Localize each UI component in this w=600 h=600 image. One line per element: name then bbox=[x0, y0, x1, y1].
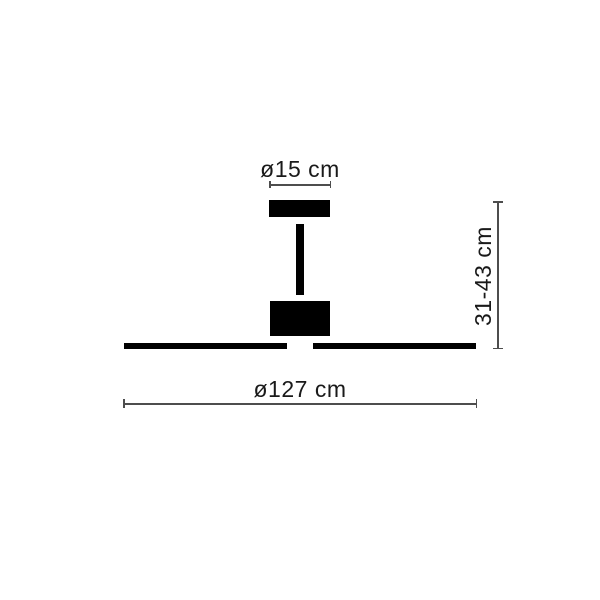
fan-motor-housing bbox=[270, 301, 330, 336]
dimension-tick bbox=[123, 399, 125, 408]
dimension-tick bbox=[493, 348, 503, 350]
canopy-dimension-line bbox=[269, 184, 331, 186]
height-range-label: 31-43 cm bbox=[470, 206, 496, 346]
fan-blade-right bbox=[313, 343, 476, 349]
fan-blade-left bbox=[124, 343, 287, 349]
dimension-tick bbox=[330, 181, 332, 188]
dimension-tick bbox=[269, 181, 271, 188]
canopy-diameter-label: ø15 cm bbox=[220, 158, 380, 181]
height-dimension-line bbox=[497, 201, 499, 349]
dimension-tick bbox=[476, 399, 478, 408]
blade-diameter-label: ø127 cm bbox=[210, 378, 390, 401]
dimension-tick bbox=[493, 201, 503, 203]
fan-dimension-diagram: ø15 cm 31-43 cm ø127 cm bbox=[0, 0, 600, 600]
fan-canopy bbox=[269, 200, 330, 217]
fan-downrod bbox=[296, 224, 304, 295]
blade-diameter-dimension-line bbox=[123, 403, 477, 405]
